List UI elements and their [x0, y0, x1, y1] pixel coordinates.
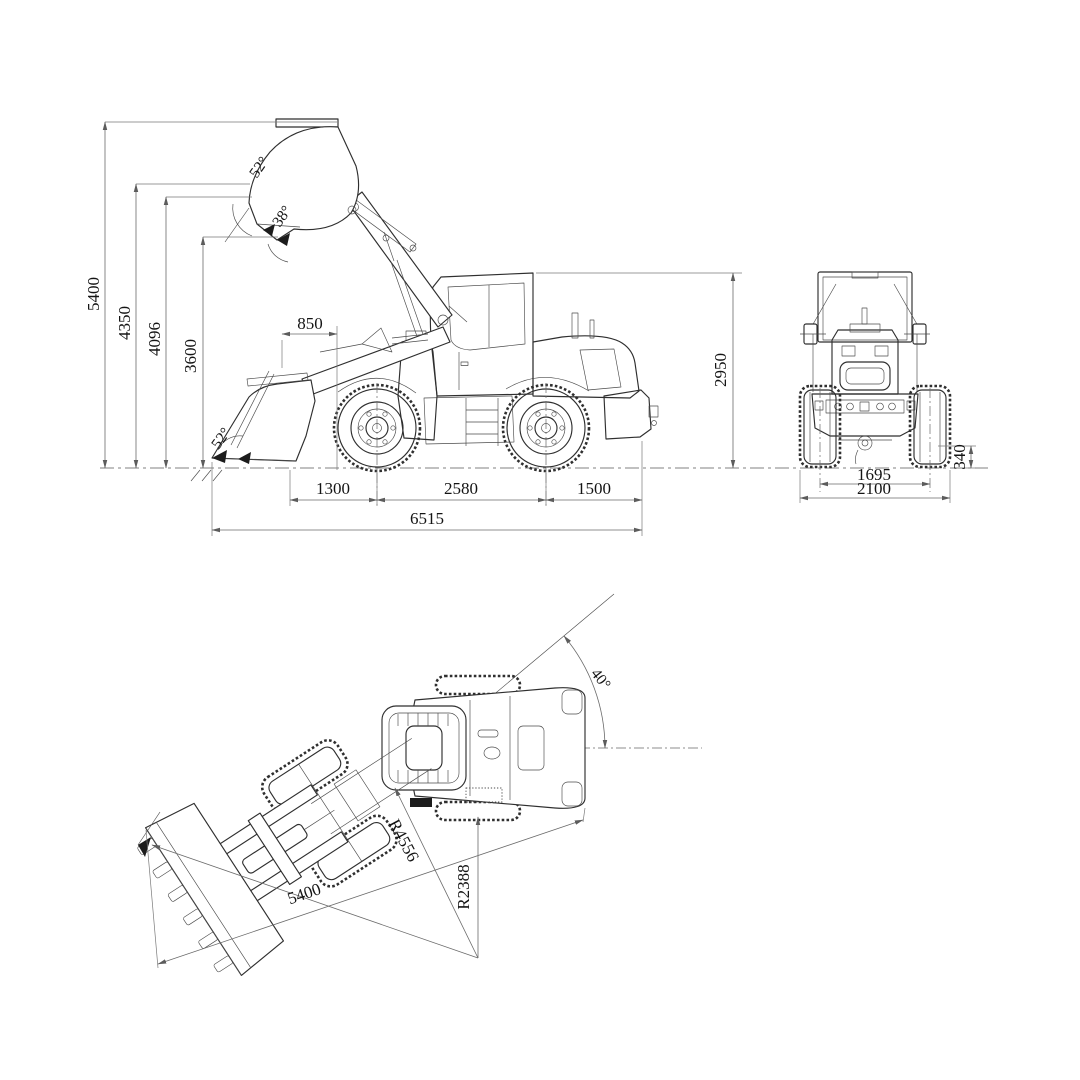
dim-ground-clearance: 340	[950, 444, 969, 470]
bucket-lowered	[191, 371, 315, 481]
dim-overall-height: 2950	[711, 353, 730, 387]
dim-hinge-pin-height: 4096	[145, 322, 164, 356]
plan-cab-roof	[382, 706, 466, 790]
dim-outer-radius: R4556	[385, 816, 423, 865]
dim-dump-height: 3600	[181, 339, 200, 373]
mirrors	[804, 284, 926, 344]
ground-hatch	[191, 470, 222, 481]
dim-overall-width: 2100	[857, 479, 891, 498]
dim-dump-clearance: 4350	[115, 306, 134, 340]
angle-articulation: 40°	[587, 665, 614, 693]
side-dimensions: 5400 4350 4096 3600 850 52° 38° 52° 1300…	[84, 122, 742, 536]
rear-dimensions: 340 1695 2100	[800, 444, 976, 503]
technical-drawing: 5400 4350 4096 3600 850 52° 38° 52° 1300…	[0, 0, 1080, 1080]
engine-hood	[533, 313, 658, 439]
boom-lowered	[302, 327, 450, 396]
edge-marker	[138, 837, 151, 857]
top-view: 40°	[130, 594, 702, 985]
dim-inner-radius: R2388	[454, 864, 473, 909]
side-view: 5400 4350 4096 3600 850 52° 38° 52° 1300…	[84, 119, 742, 536]
rops-cab	[818, 272, 912, 342]
dim-overall-length: 6515	[410, 509, 444, 528]
handrails	[800, 334, 930, 392]
engine-cover-rear	[832, 308, 898, 394]
drawing-sheet: 5400 4350 4096 3600 850 52° 38° 52° 1300…	[0, 0, 1080, 1080]
bucket-raised	[249, 119, 359, 246]
dim-wheelbase: 2580	[444, 479, 478, 498]
dim-rear-overhang: 1500	[577, 479, 611, 498]
dim-dump-reach: 850	[297, 314, 323, 333]
rear-frame	[812, 394, 918, 464]
dim-front-overhang: 1300	[316, 479, 350, 498]
chassis	[338, 377, 589, 446]
dim-max-lift-height: 5400	[84, 277, 103, 311]
